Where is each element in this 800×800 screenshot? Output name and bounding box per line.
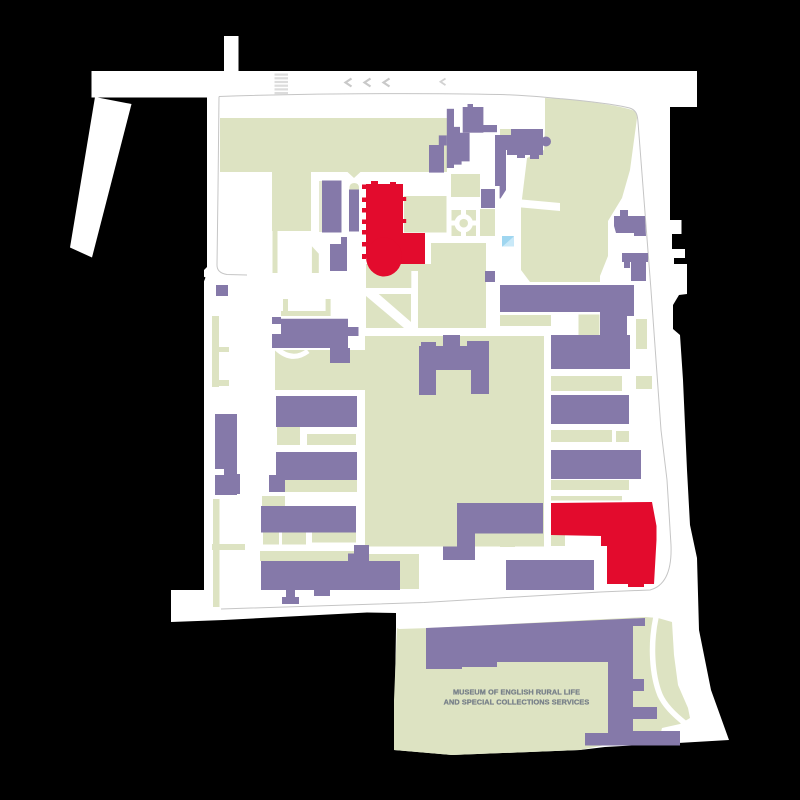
svg-text:AND SPECIAL COLLECTIONS SERVIC: AND SPECIAL COLLECTIONS SERVICES (444, 698, 590, 707)
svg-text:MUSEUM OF ENGLISH RURAL LIFE: MUSEUM OF ENGLISH RURAL LIFE (453, 688, 580, 697)
